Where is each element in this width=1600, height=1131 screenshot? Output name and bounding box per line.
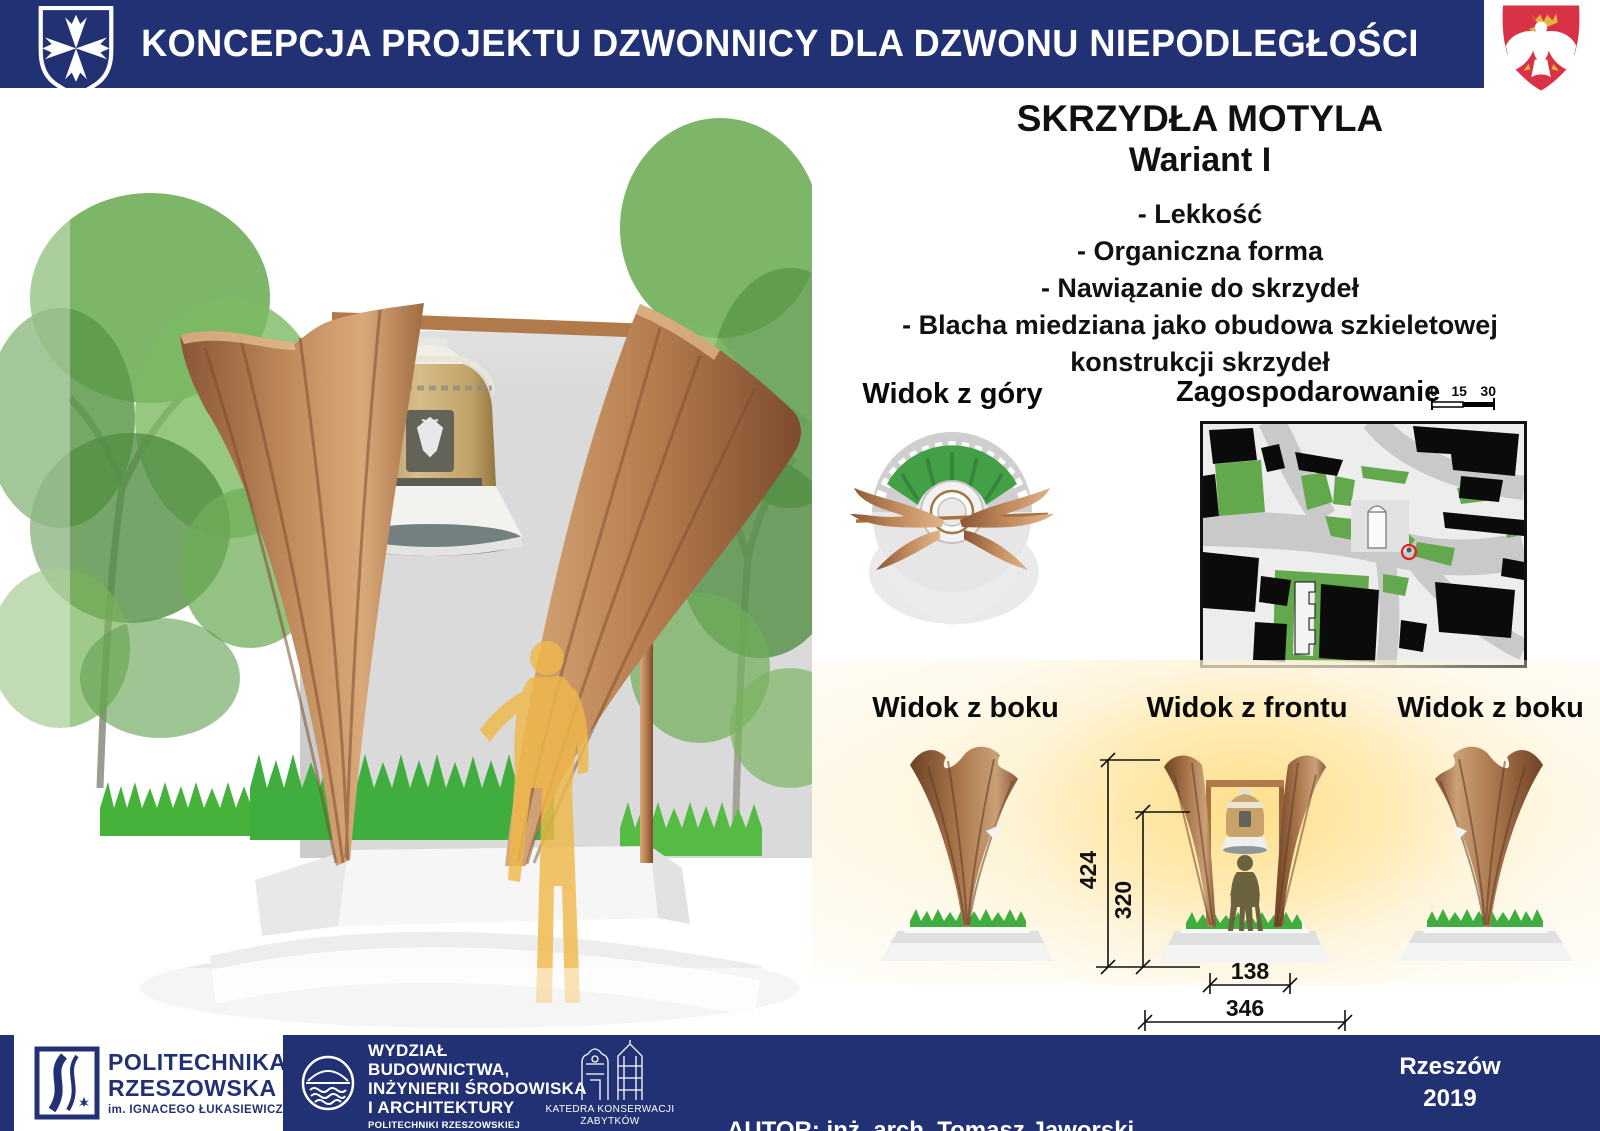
site-plan-map bbox=[1200, 421, 1527, 668]
faculty-line3: INŻYNIERII ŚRODOWISKA bbox=[368, 1079, 587, 1098]
author-line: AUTOR: inż. arch. Tomasz Jaworski bbox=[727, 1115, 1311, 1131]
department-logo-icon bbox=[568, 1040, 654, 1102]
concept-title: SKRZYDŁA MOTYLA bbox=[830, 98, 1570, 140]
prz-logo-icon bbox=[34, 1046, 100, 1120]
faculty-line1: WYDZIAŁ bbox=[368, 1041, 587, 1060]
feature-item: - Blacha miedziana jako obudowa szkielet… bbox=[830, 307, 1570, 381]
city: Rzeszów bbox=[1385, 1051, 1515, 1083]
concept-features: - Lekkość - Organiczna forma - Nawiązani… bbox=[830, 196, 1570, 381]
university-name: POLITECHNIKA RZESZOWSKA im. IGNACEGO ŁUK… bbox=[108, 1049, 292, 1116]
concept-block: SKRZYDŁA MOTYLA Wariant I - Lekkość - Or… bbox=[830, 98, 1570, 381]
front-view-label: Widok z frontu bbox=[1132, 692, 1362, 725]
top-view-render bbox=[842, 412, 1062, 637]
dimension-lines: 424 320 138 346 bbox=[1050, 730, 1390, 1035]
faculty-logo-icon bbox=[300, 1055, 356, 1111]
dim-total-height: 424 bbox=[1075, 851, 1101, 890]
scale-tick: 15 bbox=[1451, 384, 1467, 398]
scale-bar-graphic bbox=[1430, 398, 1496, 412]
map-scale-bar: 0 15 30 bbox=[1430, 384, 1496, 417]
dim-opening-width: 138 bbox=[1231, 958, 1270, 984]
university-name-line3: im. IGNACEGO ŁUKASIEWICZA bbox=[108, 1104, 292, 1116]
side-view-left-label: Widok z boku bbox=[863, 692, 1068, 725]
map-monument-site bbox=[1351, 500, 1416, 559]
scale-tick: 0 bbox=[1430, 384, 1438, 398]
site-plan-graphic bbox=[1203, 424, 1524, 665]
main-perspective-render bbox=[0, 88, 812, 1035]
scale-bar-ticks: 0 15 30 bbox=[1430, 384, 1496, 398]
poland-eagle-icon bbox=[1492, 2, 1590, 94]
department-name: KATEDRA KONSERWACJI ZABYTKÓW bbox=[535, 1104, 685, 1128]
department-line2: ZABYTKÓW bbox=[535, 1116, 685, 1128]
concept-variant: Wariant I bbox=[830, 140, 1570, 180]
year: 2019 bbox=[1385, 1083, 1515, 1115]
scale-tick: 30 bbox=[1480, 384, 1496, 398]
side-view-right-render bbox=[1385, 735, 1585, 975]
feature-item: - Nawiązanie do skrzydeł bbox=[830, 270, 1570, 307]
presentation-board: KONCEPCJA PROJEKTU DZWONNICY DLA DZWONU … bbox=[0, 0, 1600, 1131]
side-view-right-label: Widok z boku bbox=[1388, 692, 1593, 725]
rzeszow-coat-of-arms-icon bbox=[34, 3, 118, 97]
feature-item: - Organiczna forma bbox=[830, 233, 1570, 270]
university-name-line2: RZESZOWSKA bbox=[108, 1075, 292, 1101]
city-year: Rzeszów 2019 bbox=[1385, 1051, 1515, 1115]
dim-portal-height: 320 bbox=[1110, 881, 1136, 919]
dim-base-width: 346 bbox=[1226, 995, 1264, 1021]
feature-item: - Lekkość bbox=[830, 196, 1570, 233]
faculty-line2: BUDOWNICTWA, bbox=[368, 1060, 587, 1079]
university-name-line1: POLITECHNIKA bbox=[108, 1049, 292, 1075]
credits: AUTOR: inż. arch. Tomasz Jaworski PROMOT… bbox=[727, 1051, 1311, 1131]
site-plan-label: Zagospodarowanie bbox=[1176, 376, 1440, 409]
top-view-label: Widok z góry bbox=[845, 378, 1060, 411]
footer-left-accent bbox=[0, 1035, 14, 1131]
department-line1: KATEDRA KONSERWACJI bbox=[535, 1104, 685, 1116]
side-view-left-render bbox=[868, 735, 1068, 975]
page-title: KONCEPCJA PROJEKTU DZWONNICY DLA DZWONU … bbox=[182, 0, 1379, 88]
